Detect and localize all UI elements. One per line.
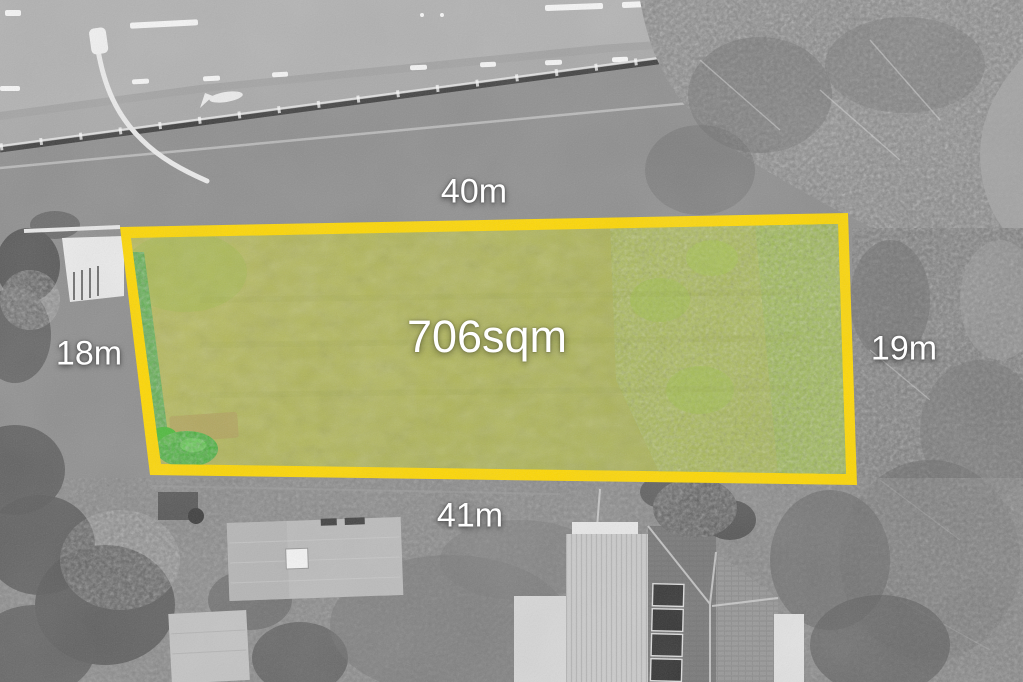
left-depth-label: 18m: [56, 335, 122, 374]
right-depth-label: 19m: [871, 330, 937, 369]
bottom-width-label: 41m: [437, 497, 503, 536]
top-width-label: 40m: [441, 173, 507, 212]
area-label: 706sqm: [407, 311, 567, 363]
aerial-photo: 40m 18m 19m 41m 706sqm: [0, 0, 1023, 682]
